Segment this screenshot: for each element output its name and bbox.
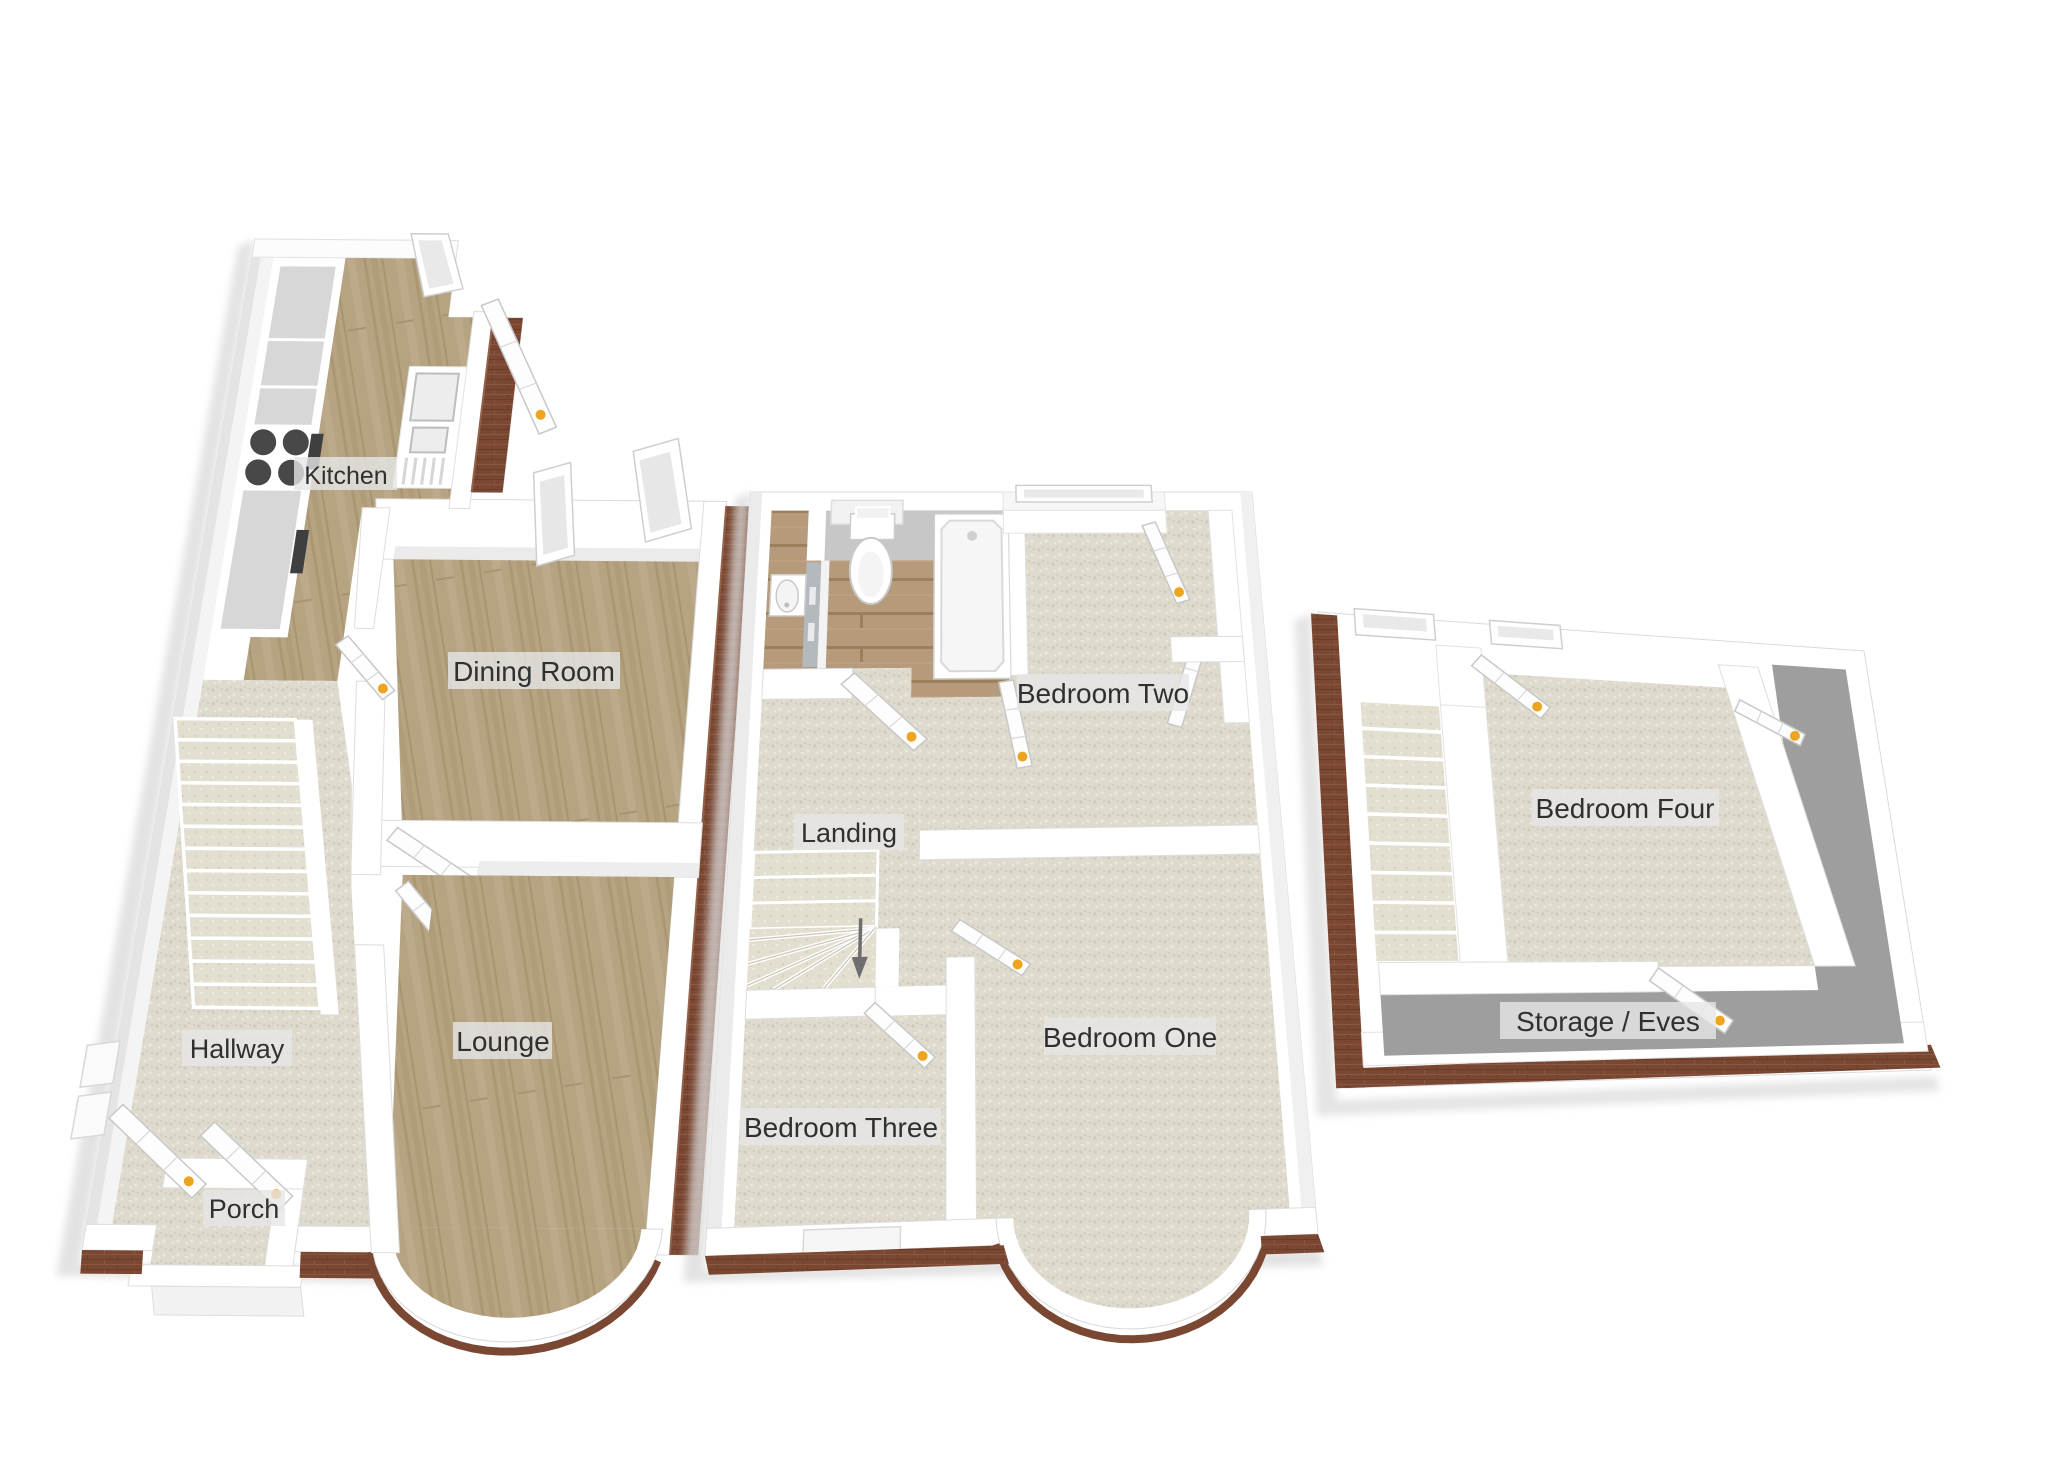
svg-text:Dining Room: Dining Room — [453, 656, 615, 687]
svg-text:Landing: Landing — [801, 818, 897, 848]
svg-text:Porch: Porch — [209, 1194, 280, 1224]
svg-text:Storage / Eves: Storage / Eves — [1516, 1006, 1700, 1037]
svg-text:Hallway: Hallway — [190, 1034, 285, 1064]
svg-text:Bedroom Two: Bedroom Two — [1017, 678, 1189, 709]
svg-text:Lounge: Lounge — [456, 1026, 549, 1057]
svg-text:Bedroom One: Bedroom One — [1043, 1022, 1217, 1053]
svg-text:Kitchen: Kitchen — [304, 462, 387, 490]
svg-text:Bedroom Three: Bedroom Three — [744, 1112, 938, 1143]
svg-text:Bedroom Four: Bedroom Four — [1536, 793, 1715, 824]
